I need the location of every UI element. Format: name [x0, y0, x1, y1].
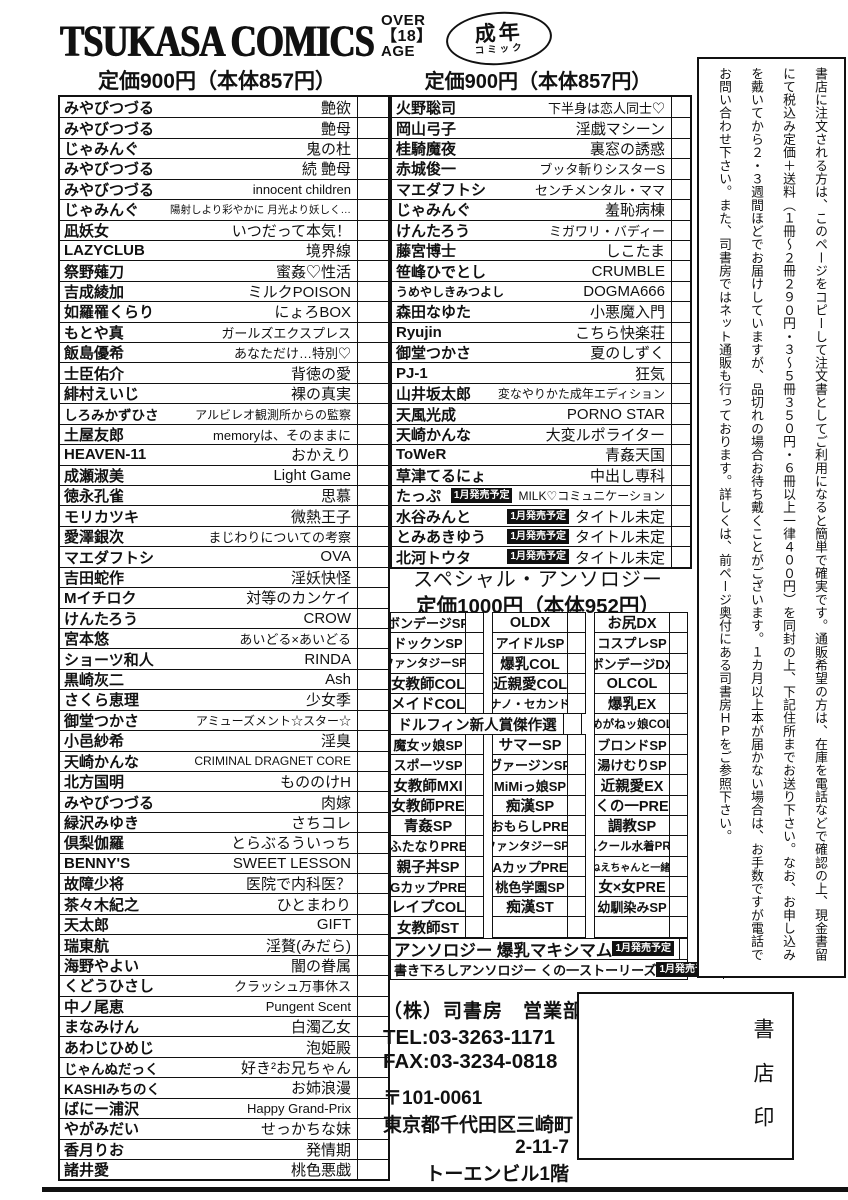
order-check-cell	[357, 384, 388, 403]
order-check-cell	[671, 221, 690, 240]
order-check-cell	[357, 302, 388, 321]
publisher-address-line1: 東京都千代田区三崎町	[383, 1110, 583, 1137]
book-title: RINDA	[304, 651, 355, 668]
anthology-cell: ドルフィン新人賞傑作選	[390, 713, 582, 734]
order-check-cell	[465, 897, 483, 916]
catalog-row: 北河トウタ1月発売予定タイトル未定	[392, 546, 690, 566]
anthology-cell: ボンデージDX	[594, 653, 688, 674]
order-check-cell	[357, 854, 388, 873]
book-title: 少女季	[306, 689, 355, 710]
author-name: 諸井愛	[64, 1159, 109, 1180]
author-name: みやびつづる	[64, 97, 154, 118]
anthology-title: AカップPRE	[493, 857, 567, 876]
anthology-title: 女×女PRE	[595, 877, 669, 896]
order-check-cell	[671, 384, 690, 403]
order-check-cell	[357, 609, 388, 628]
anthology-title: 青姦SP	[391, 816, 465, 835]
order-check-cell	[567, 857, 585, 876]
anthology-cell: 青姦SP	[390, 815, 484, 836]
catalog-row: しろみかずひさアルビレオ観測所からの監察	[60, 403, 388, 423]
order-check-cell	[357, 261, 388, 280]
anthology-cell: コスプレSP	[594, 632, 688, 653]
order-check-cell	[671, 118, 690, 137]
catalog-row: KASHIみちのくお姉浪漫	[60, 1077, 388, 1097]
author-name: マエダフトシ	[64, 547, 154, 568]
order-check-cell	[357, 323, 388, 342]
order-check-cell	[357, 180, 388, 199]
catalog-row: くどうひさしクラッシュ万事休ス	[60, 975, 388, 995]
author-name: みやびつづる	[64, 158, 154, 179]
book-title: SWEET LESSON	[233, 855, 355, 872]
book-title: 青姦天国	[605, 444, 669, 465]
author-name: けんたろう	[396, 220, 470, 241]
anthology-cell: おねえちゃんと一緒SP	[594, 856, 688, 877]
anthology-cell	[594, 916, 688, 937]
book-title: 境界線	[306, 240, 355, 261]
age-rating-mark: OVER 【18】 AGE	[381, 13, 433, 60]
book-title: 艶欲	[321, 97, 355, 118]
book-title: センチメンタル・ママ	[535, 180, 669, 199]
book-title: 発情期	[306, 1139, 355, 1160]
order-check-cell	[357, 282, 388, 301]
anthology-grid-row: 親子丼SPAカップPREおねえちゃんと一緒SP	[390, 856, 688, 877]
order-check-cell	[567, 755, 585, 774]
catalog-row: もとや真ガールズエクスプレス	[60, 322, 388, 342]
anthology-heading: スペシャル・アンソロジー	[388, 570, 688, 590]
book-title: Pungent Scent	[266, 999, 355, 1014]
catalog-row: じゃみんぐ羞恥病棟	[392, 199, 690, 219]
anthology-cell: GカップPRE	[390, 876, 484, 897]
anthology-title: 女教師PRE	[391, 796, 465, 815]
book-title: 微熱王子	[291, 506, 355, 527]
book-title: いつだって本気！	[232, 220, 355, 241]
author-name: やがみだい	[64, 1118, 139, 1139]
catalog-row: 藤宮博士しこたま	[392, 240, 690, 260]
release-badge: 1月発売予定	[507, 549, 569, 564]
author-name: ToWeR	[396, 446, 446, 463]
catalog-row: 天風光成PORNO STAR	[392, 403, 690, 423]
anthology-cell: お尻DX	[594, 612, 688, 633]
book-title: GIFT	[317, 916, 355, 933]
author-name: じゃみんぐ	[64, 199, 139, 220]
anthology-cell: OLCOL	[594, 673, 688, 694]
author-name: 緋村えいじ	[64, 383, 139, 404]
order-check-cell	[357, 772, 388, 791]
order-check-cell	[357, 506, 388, 525]
author-name: 海野やよい	[64, 955, 139, 976]
price-header-mid: 定価900円（本体857円）	[388, 65, 688, 94]
book-title: 裸の真実	[291, 383, 355, 404]
anthology-title: 痴漢SP	[493, 796, 567, 815]
anthology-cell: スクール水着PRE	[594, 835, 688, 856]
author-name: 飯島優希	[64, 342, 124, 363]
anthology-cell: 女教師COL	[390, 673, 484, 694]
anthology-cell: ふたなりPRE	[390, 835, 484, 856]
catalog-row: 凪妖女いつだって本気！	[60, 220, 388, 240]
order-check-cell	[465, 755, 483, 774]
catalog-row: 瑞東航淫贅(みだら)	[60, 934, 388, 954]
book-title: ブッタ斬りシスターS	[539, 159, 669, 178]
order-check-cell	[465, 857, 483, 876]
order-check-cell	[669, 836, 687, 855]
author-name: 小邑紗希	[64, 730, 124, 751]
order-check-cell	[567, 613, 585, 632]
catalog-row: ToWeR青姦天国	[392, 444, 690, 464]
book-title: 中出し専科	[590, 465, 669, 486]
order-check-cell	[669, 694, 687, 713]
book-title: 闇の眷属	[291, 955, 355, 976]
author-name: けんたろう	[64, 608, 138, 629]
author-name: 倶梨伽羅	[64, 832, 124, 853]
book-title: 白濁乙女	[291, 1016, 355, 1037]
anthology-grid-row: 魔女ッ娘SPサマーSPブロンドSP	[390, 734, 688, 755]
order-check-cell	[357, 690, 388, 709]
catalog-row: みやびつづる艶欲	[60, 97, 388, 117]
catalog-row: マエダフトシOVA	[60, 546, 388, 566]
seinen-comic-badge: 成年 コミック	[444, 8, 553, 68]
order-check-cell	[669, 775, 687, 794]
anthology-title: 湯けむりSP	[595, 755, 669, 774]
order-check-cell	[465, 917, 483, 936]
anthology-grid-row: メイドCOLナノ・セカンド爆乳EX	[390, 693, 688, 714]
left-catalog-table: みやびつづる艶欲みやびつづる艶母じゃみんぐ鬼の杜みやびつづる続 艶母みやびつづる…	[58, 95, 390, 1181]
author-name: ショーツ和人	[64, 649, 154, 670]
catalog-row: 茶々木紀之ひとまわり	[60, 893, 388, 913]
book-title: タイトル未定	[575, 506, 669, 527]
anthology-title: 幼馴染みSP	[595, 897, 669, 916]
anthology-title: ドルフィン新人賞傑作選	[391, 714, 563, 733]
order-check-cell	[357, 629, 388, 648]
catalog-row: 飯島優希あなただけ…特別♡	[60, 342, 388, 362]
book-title: 思慕	[321, 485, 355, 506]
anthology-cell: ボンデージSP	[390, 612, 484, 633]
catalog-row: けんたろうCROW	[60, 608, 388, 628]
anthology-title: OLDX	[493, 613, 567, 632]
catalog-row: じゃんぬだっく好き²お兄ちゃん	[60, 1057, 388, 1077]
order-check-cell	[669, 674, 687, 693]
book-title: 淫戯マシーン	[576, 118, 669, 139]
author-name: Ryujin	[396, 324, 442, 341]
book-title: 羞恥病棟	[605, 199, 669, 220]
anthology-grid-row: GカップPRE桃色学園SP女×女PRE	[390, 876, 688, 897]
catalog-row: 岡山弓子淫戯マシーン	[392, 117, 690, 137]
anthology-title: 桃色学園SP	[493, 877, 567, 896]
order-check-cell	[671, 445, 690, 464]
author-name: あわじひめじ	[64, 1037, 154, 1058]
anthology-title: 近親愛EX	[595, 775, 669, 794]
author-name: 徳永孔雀	[64, 485, 124, 506]
catalog-row: 士臣佑介背徳の愛	[60, 362, 388, 382]
catalog-row: マエダフトシセンチメンタル・ママ	[392, 179, 690, 199]
catalog-row: ばにー浦沢Happy Grand-Prix	[60, 1098, 388, 1118]
catalog-row: モリカツキ微熱王子	[60, 505, 388, 525]
order-check-cell	[357, 486, 388, 505]
book-title: ミルクPOISON	[248, 281, 355, 302]
bookstore-stamp-box: 書店印	[577, 992, 794, 1160]
catalog-row: 祭野薙刀蜜姦♡性活	[60, 260, 388, 280]
order-check-cell	[465, 877, 483, 896]
catalog-row: けんたろうミガワリ・バディー	[392, 220, 690, 240]
anthology-grid-row: 女教師COL近親愛COLOLCOL	[390, 673, 688, 694]
book-title: クラッシュ万事休ス	[234, 976, 355, 995]
catalog-row: 吉成綾加ミルクPOISON	[60, 281, 388, 301]
book-title: まじわりについての考察	[208, 527, 355, 546]
author-name: たっぷ	[396, 485, 441, 506]
order-check-cell	[357, 792, 388, 811]
order-check-cell	[671, 323, 690, 342]
anthology-cell: 女教師ST	[390, 916, 484, 937]
author-name: 凪妖女	[64, 220, 109, 241]
book-title: 続 艶母	[302, 158, 355, 179]
catalog-row: まなみけん白濁乙女	[60, 1016, 388, 1036]
book-title: ガールズエクスプレス	[221, 323, 355, 342]
order-check-cell	[567, 917, 585, 936]
order-check-cell	[671, 180, 690, 199]
publisher-fax: FAX:03-3234-0818	[383, 1050, 583, 1074]
author-name: じゃんぬだっく	[64, 1058, 159, 1078]
author-name: 北方国明	[64, 771, 124, 792]
book-title: アルビレオ観測所からの監察	[195, 406, 355, 423]
anthology-title: ヴァージンSP	[493, 755, 567, 774]
anthology-title: ファンタジーSP2	[391, 654, 465, 673]
order-check-cell	[357, 343, 388, 362]
author-name: 天風光成	[396, 404, 456, 425]
book-title: Happy Grand-Prix	[247, 1101, 355, 1116]
anthology-title: ブロンドSP	[595, 735, 669, 754]
author-name: モリカツキ	[64, 506, 139, 527]
order-check-cell	[669, 755, 687, 774]
order-check-cell	[357, 568, 388, 587]
release-badge: 1月発売予定	[507, 529, 569, 544]
book-title: ミガワリ・バディー	[549, 221, 669, 240]
order-check-cell	[567, 816, 585, 835]
order-check-cell	[671, 261, 690, 280]
order-check-cell	[679, 939, 696, 959]
author-name: 茶々木紀之	[64, 894, 139, 915]
order-check-cell	[671, 506, 690, 525]
order-check-cell	[671, 527, 690, 546]
catalog-row: BENNY'SSWEET LESSON	[60, 853, 388, 873]
catalog-row: 御堂つかさ夏のしずく	[392, 342, 690, 362]
anthology-cell: 女教師PRE	[390, 795, 484, 816]
anthology-cell: AカップPRE	[492, 856, 586, 877]
order-check-cell	[357, 935, 388, 954]
book-title: CROW	[304, 610, 356, 627]
order-check-cell	[465, 796, 483, 815]
order-check-cell	[465, 613, 483, 632]
book-title: 泡姫殿	[306, 1037, 355, 1058]
order-check-cell	[465, 633, 483, 652]
book-title: Light Game	[273, 467, 355, 484]
catalog-row: うめやしきみつよしDOGMA666	[392, 281, 690, 301]
anthology-title: スポーツSP	[391, 755, 465, 774]
author-name: 祭野薙刀	[64, 261, 124, 282]
anthology-cell: ドックンSP	[390, 632, 484, 653]
order-check-cell	[465, 816, 483, 835]
order-check-cell	[567, 836, 585, 855]
anthology-grid-row: ファンタジーSP2爆乳COLボンデージDX	[390, 653, 688, 674]
author-name: さくら恵理	[64, 689, 139, 710]
order-check-cell	[671, 404, 690, 423]
mid-catalog-table: 火野聡司下半身は恋人同士♡岡山弓子淫戯マシーン桂騎魔夜裏窓の誘惑赤城俊一ブッタ斬…	[390, 95, 692, 569]
anthology-grid-row: ふたなりPREファンタジーSP3スクール水着PRE	[390, 835, 688, 856]
catalog-row: 天崎かんなCRIMINAL DRAGNET CORE	[60, 751, 388, 771]
anthology-title: 書き下ろしアンソロジー くの一ストーリーズ	[394, 960, 656, 979]
author-name: マエダフトシ	[396, 179, 486, 200]
author-name: 桂騎魔夜	[396, 138, 456, 159]
age-rating-line1: OVER	[381, 13, 433, 29]
catalog-row: やがみだいせっかちな妹	[60, 1118, 388, 1138]
order-check-cell	[671, 425, 690, 444]
order-check-cell	[357, 425, 388, 444]
anthology-title: 女教師COL	[391, 674, 465, 693]
anthology-cell: レイプCOL	[390, 896, 484, 917]
anthology-cell: 女×女PRE	[594, 876, 688, 897]
order-check-cell	[669, 816, 687, 835]
author-name: もとや真	[64, 322, 124, 343]
catalog-row: 故障少将医院で内科医？	[60, 873, 388, 893]
order-check-cell	[671, 486, 690, 505]
author-name: 草津てるにょ	[396, 465, 486, 486]
order-check-cell	[357, 833, 388, 852]
author-name: 天崎かんな	[396, 424, 471, 445]
anthology-cell: めがねッ娘COL	[594, 713, 688, 734]
book-title: ひとまわり	[276, 894, 355, 915]
author-name: Mイチロク	[64, 587, 137, 608]
author-name: PJ-1	[396, 365, 428, 382]
book-title: しこたま	[605, 240, 669, 261]
anthology-title: おもらしPRE	[493, 816, 567, 835]
author-name: 笹峰ひでとし	[396, 261, 486, 282]
author-name: 如羅罹くらり	[64, 301, 154, 322]
catalog-row: 土屋友郎memoryは、そのままに	[60, 424, 388, 444]
author-name: 山井坂太郎	[396, 383, 471, 404]
anthology-cell: 痴漢SP	[492, 795, 586, 816]
publisher-name: （株）司書房 営業部	[383, 996, 583, 1023]
anthology-title: コスプレSP	[595, 633, 669, 652]
book-title: さちコレ	[291, 812, 355, 833]
release-badge: 1月発売予定	[507, 509, 569, 524]
anthology-full-rows: アンソロジー 爆乳マキシマム1月発売予定書き下ろしアンソロジー くの一ストーリー…	[390, 938, 688, 980]
book-title: 淫贅(みだら)	[266, 935, 355, 956]
anthology-grid-row: ボンデージSPOLDXお尻DX	[390, 612, 688, 633]
anthology-title: ナノ・セカンド	[493, 694, 567, 713]
order-check-cell	[669, 613, 687, 632]
anthology-cell: 爆乳EX	[594, 693, 688, 714]
order-check-cell	[671, 241, 690, 260]
book-title: おかえり	[291, 444, 355, 465]
order-check-cell	[671, 97, 690, 117]
author-name: 土屋友郎	[64, 424, 124, 445]
order-check-cell	[567, 735, 585, 754]
catalog-row: 小邑紗希淫臭	[60, 730, 388, 750]
release-badge: 1月発売予定	[612, 941, 674, 956]
anthology-title: ボンデージDX	[595, 654, 669, 673]
publisher-logo: TSUKASA COMICS	[55, 16, 378, 68]
author-name: 愛澤銀次	[64, 526, 124, 547]
order-check-cell	[357, 159, 388, 178]
author-name: まなみけん	[64, 1016, 139, 1037]
order-notice-box: 書店に注文される方は、このページをコピーして注文書としてご利用になると簡単で確実…	[697, 57, 846, 978]
order-check-cell	[669, 654, 687, 673]
book-title: あなただけ…特別♡	[234, 343, 355, 362]
order-check-cell	[671, 466, 690, 485]
catalog-row: あわじひめじ泡姫殿	[60, 1036, 388, 1056]
order-check-cell	[357, 445, 388, 464]
author-name: みやびつづる	[64, 118, 154, 139]
anthology-title: おねえちゃんと一緒SP	[595, 857, 669, 876]
book-title: DOGMA666	[583, 283, 669, 300]
anthology-title: ファンタジーSP3	[493, 836, 567, 855]
order-check-cell	[669, 917, 687, 936]
book-title: せっかちな妹	[261, 1118, 355, 1139]
order-check-cell	[357, 752, 388, 771]
catalog-row: 北方国明もののけH	[60, 771, 388, 791]
anthology-grid-row: レイプCOL痴漢ST幼馴染みSP	[390, 896, 688, 917]
anthology-cell: 近親愛EX	[594, 774, 688, 795]
order-check-cell	[567, 633, 585, 652]
author-name: 吉成綾加	[64, 281, 124, 302]
anthology-grid-row: 女教師MXIMiMiっ娘SP近親愛EX	[390, 774, 688, 795]
author-name: みやびつづる	[64, 792, 154, 813]
catalog-row: 香月りお発情期	[60, 1139, 388, 1159]
anthology-cell: 調教SP	[594, 815, 688, 836]
anthology-title: GカップPRE	[391, 877, 465, 896]
author-name: 岡山弓子	[396, 118, 456, 139]
book-title: memoryは、そのままに	[213, 425, 355, 444]
author-name: 水谷みんと	[396, 506, 471, 527]
book-title: 対等のカンケイ	[246, 587, 355, 608]
author-name: 火野聡司	[396, 97, 456, 118]
book-title: 狂気	[635, 363, 669, 384]
anthology-grid-row: スポーツSPヴァージンSP湯けむりSP	[390, 754, 688, 775]
order-check-cell	[671, 159, 690, 178]
author-name: 天太郎	[64, 914, 109, 935]
order-check-cell	[671, 343, 690, 362]
book-title: あいどる×あいどる	[239, 629, 355, 648]
anthology-cell: 爆乳COL	[492, 653, 586, 674]
anthology-title: アイドルSP	[493, 633, 567, 652]
anthology-grid-row: 女教師ST	[390, 916, 688, 937]
catalog-row: 海野やよい闇の眷属	[60, 955, 388, 975]
anthology-cell: 近親愛COL	[492, 673, 586, 694]
book-title: にょろBOX	[274, 301, 355, 322]
book-title: 変なやりかた成年エディション	[498, 385, 669, 402]
anthology-title: ドックンSP	[391, 633, 465, 652]
order-notice-column: を戴いてから２・３週間ほどでお届けしていますが、品切れの場合お待ち戴くことがござ…	[740, 67, 772, 968]
anthology-title: 痴漢ST	[493, 897, 567, 916]
catalog-row: とみあきゆう1月発売予定タイトル未定	[392, 526, 690, 546]
order-notice-column: お問い合わせ下さい。また、司書房ではネット通販も行っております。詳しくは、前ペー…	[708, 67, 740, 968]
book-title: innocent children	[253, 182, 355, 197]
book-title: タイトル未定	[575, 547, 669, 568]
author-name: 黒崎灰二	[64, 669, 124, 690]
catalog-row: みやびつづるinnocent children	[60, 179, 388, 199]
anthology-cell: 桃色学園SP	[492, 876, 586, 897]
anthology-title	[493, 917, 567, 936]
catalog-row: 赤城俊一ブッタ斬りシスターS	[392, 158, 690, 178]
anthology-cell: OLDX	[492, 612, 586, 633]
order-check-cell	[357, 894, 388, 913]
anthology-title: MiMiっ娘SP	[493, 775, 567, 794]
author-name: 士臣佑介	[64, 363, 124, 384]
anthology-cell: スポーツSP	[390, 754, 484, 775]
author-name: じゃみんぐ	[396, 199, 471, 220]
order-check-cell	[669, 857, 687, 876]
book-title: MILK♡コミュニケーション	[518, 487, 669, 504]
order-check-cell	[669, 877, 687, 896]
author-name: じゃみんぐ	[64, 138, 139, 159]
